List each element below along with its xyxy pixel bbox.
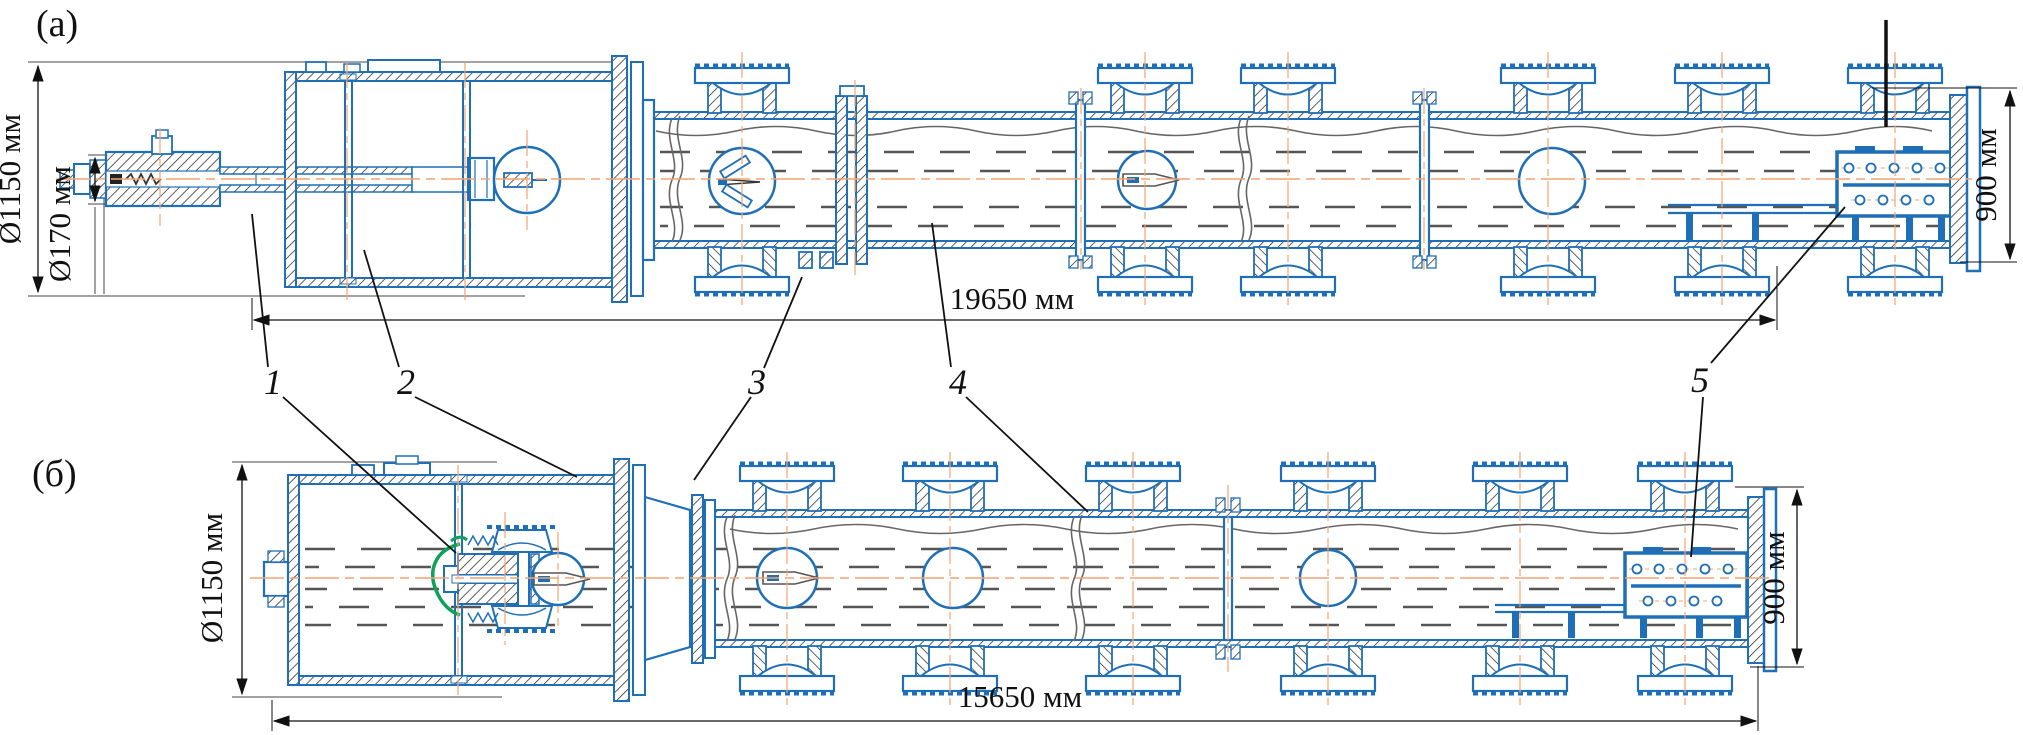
plasma-gun-b xyxy=(433,527,590,631)
dim-outer-diameter-a: Ø1150 мм xyxy=(0,114,27,244)
breakout-wavy-line-b xyxy=(730,525,1738,534)
panel-b-drawing xyxy=(232,452,1776,705)
callout-leaders xyxy=(252,207,1845,557)
panel-b-label: (б) xyxy=(32,453,77,495)
adapter-cone-b xyxy=(645,495,715,663)
callout-2: 2 xyxy=(397,362,415,402)
dim-outer-diameter-b: Ø1150 мм xyxy=(194,513,229,643)
dim-length-b: 15650 мм xyxy=(958,679,1082,714)
port-flanges-a xyxy=(695,66,1942,295)
callout-4: 4 xyxy=(949,362,967,402)
dim-length-a: 19650 мм xyxy=(950,281,1074,316)
engineering-drawing-figure: (a) (б) Ø1150 мм Ø170 мм 19650 мм 900 мм… xyxy=(0,0,2023,735)
injector-assembly-a xyxy=(60,130,494,206)
callout-5: 5 xyxy=(1691,360,1709,400)
centerlines-a xyxy=(56,52,1972,306)
callout-3: 3 xyxy=(747,362,766,402)
panel-a-drawing xyxy=(28,20,1980,306)
drift-tube-a xyxy=(643,20,1980,295)
dim-end-height-b: 900 мм xyxy=(1756,531,1791,624)
panel-a-label: (a) xyxy=(36,3,78,45)
drawing-canvas: (a) (б) Ø1150 мм Ø170 мм 19650 мм 900 мм… xyxy=(0,0,2023,735)
dim-inner-diameter-a: Ø170 мм xyxy=(42,166,77,282)
callout-1: 1 xyxy=(264,362,282,402)
dim-end-height-a: 900 мм xyxy=(1968,128,2003,221)
